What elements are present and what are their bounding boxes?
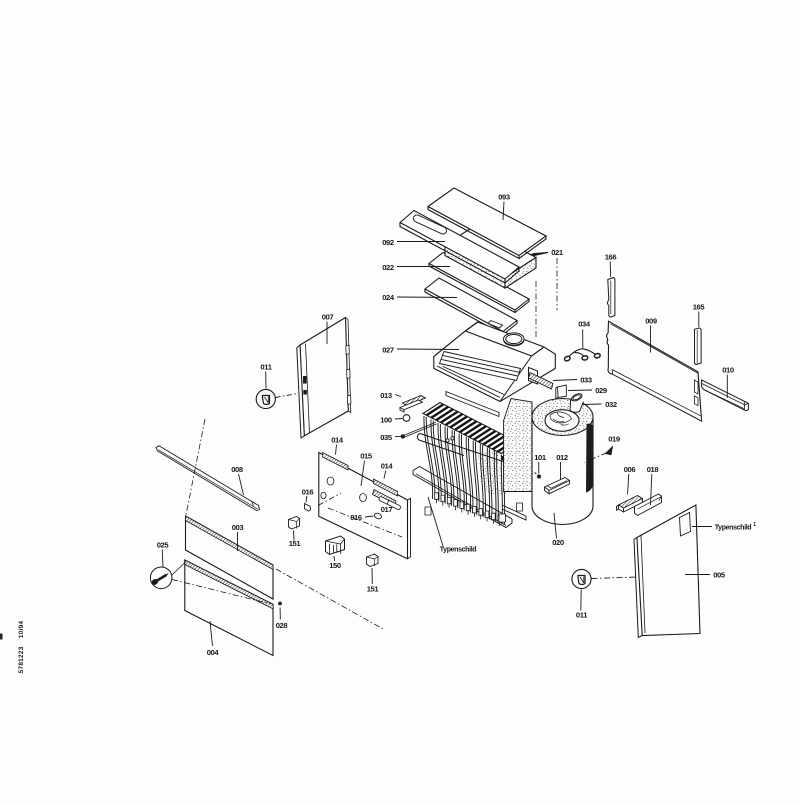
svg-text:165: 165 (693, 303, 706, 312)
svg-text:004: 004 (207, 648, 220, 657)
svg-text:092: 092 (382, 238, 394, 247)
svg-text:009: 009 (645, 317, 657, 326)
svg-text:018: 018 (647, 465, 659, 474)
svg-text:021: 021 (551, 248, 564, 257)
svg-text:150: 150 (329, 561, 341, 570)
svg-text:011: 011 (576, 611, 588, 620)
svg-text:151: 151 (289, 539, 302, 548)
svg-text:020: 020 (552, 538, 564, 547)
svg-text:014: 014 (381, 462, 394, 471)
svg-text:Typenschild: Typenschild (715, 525, 752, 532)
svg-text:100: 100 (380, 416, 392, 425)
svg-text:017: 017 (381, 505, 393, 514)
svg-text:011: 011 (260, 363, 272, 372)
svg-text:Typenschild: Typenschild (440, 547, 477, 554)
svg-text:019: 019 (608, 435, 620, 444)
svg-text:022: 022 (382, 263, 394, 272)
svg-text:035: 035 (380, 433, 393, 442)
svg-text:014: 014 (331, 436, 344, 445)
svg-text:028: 028 (276, 621, 288, 630)
svg-text:016: 016 (302, 488, 314, 497)
svg-text:003: 003 (232, 523, 244, 532)
svg-text:027: 027 (382, 346, 394, 355)
svg-text:010: 010 (722, 366, 734, 375)
svg-text:024: 024 (382, 293, 395, 302)
svg-text:012: 012 (556, 453, 568, 462)
svg-text:093: 093 (498, 193, 510, 202)
svg-text:007: 007 (322, 313, 334, 322)
svg-text:015: 015 (360, 452, 373, 461)
svg-text:006: 006 (624, 465, 636, 474)
svg-text:013: 013 (380, 391, 392, 400)
svg-text:034: 034 (578, 320, 591, 329)
svg-text:5781223 10/94: 5781223 10/94 (18, 620, 25, 673)
svg-text:166: 166 (605, 253, 617, 262)
svg-text:029: 029 (595, 386, 607, 395)
svg-text:005: 005 (713, 571, 726, 580)
svg-text:032: 032 (605, 400, 617, 409)
svg-text:025: 025 (157, 541, 170, 550)
svg-text:008: 008 (231, 465, 243, 474)
svg-text:101: 101 (534, 453, 547, 462)
svg-text:033: 033 (580, 376, 592, 385)
svg-text:151: 151 (367, 585, 380, 594)
